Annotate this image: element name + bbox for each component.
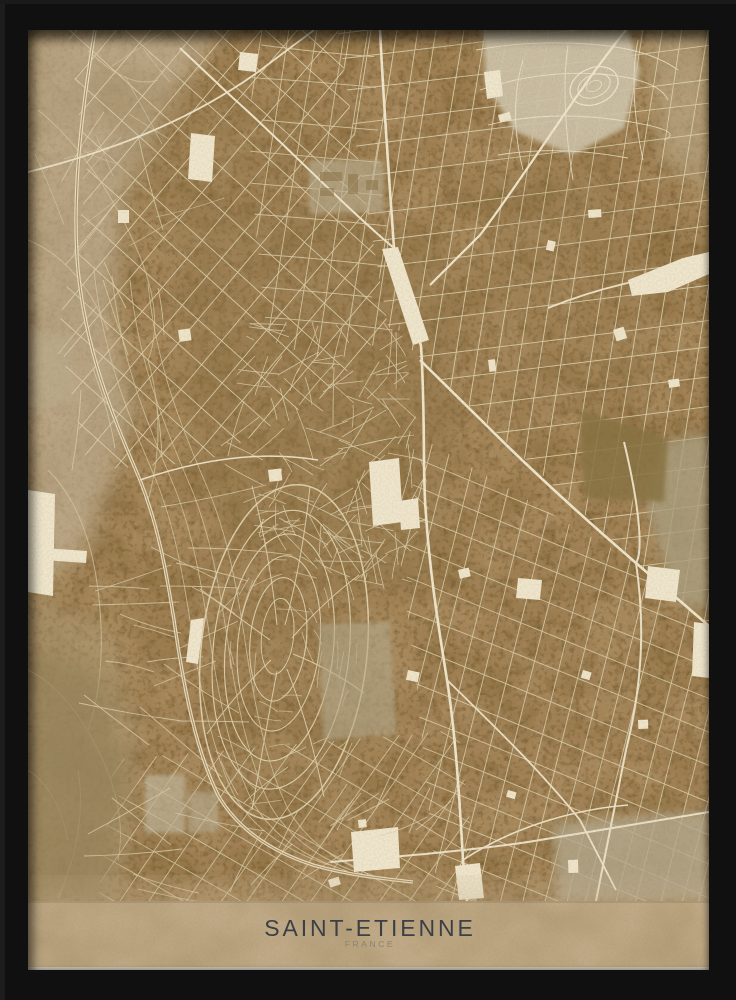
svg-text:SAINT-ETIENNE: SAINT-ETIENNE [264, 915, 476, 941]
svg-text:FRANCE: FRANCE [345, 939, 396, 949]
